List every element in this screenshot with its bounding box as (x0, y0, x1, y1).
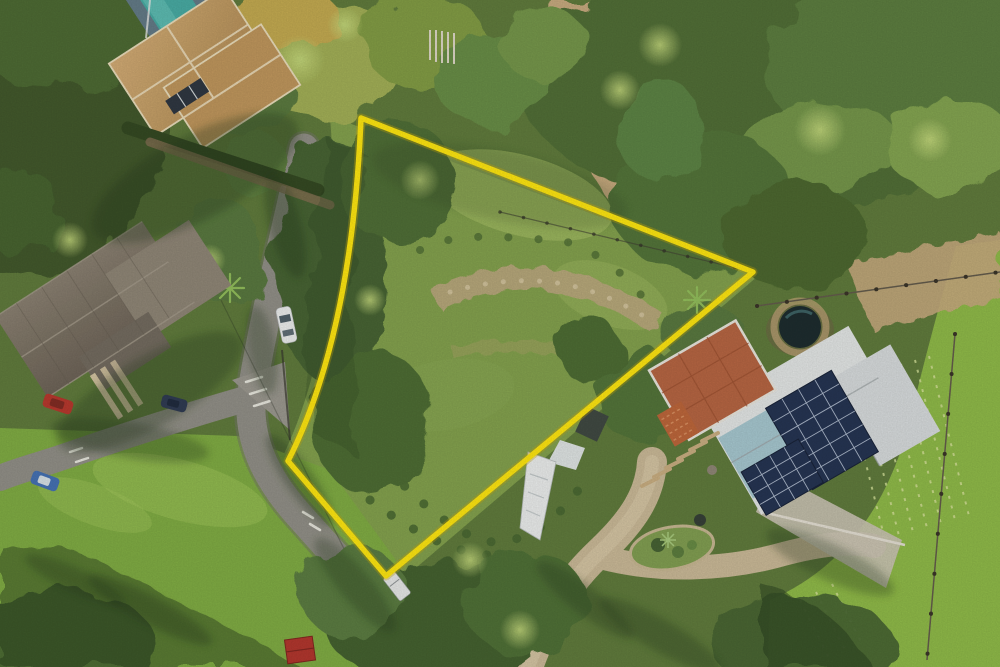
aerial-photo (0, 0, 1000, 667)
aerial-photo-canvas (0, 0, 1000, 667)
photo-grain (0, 0, 1000, 667)
